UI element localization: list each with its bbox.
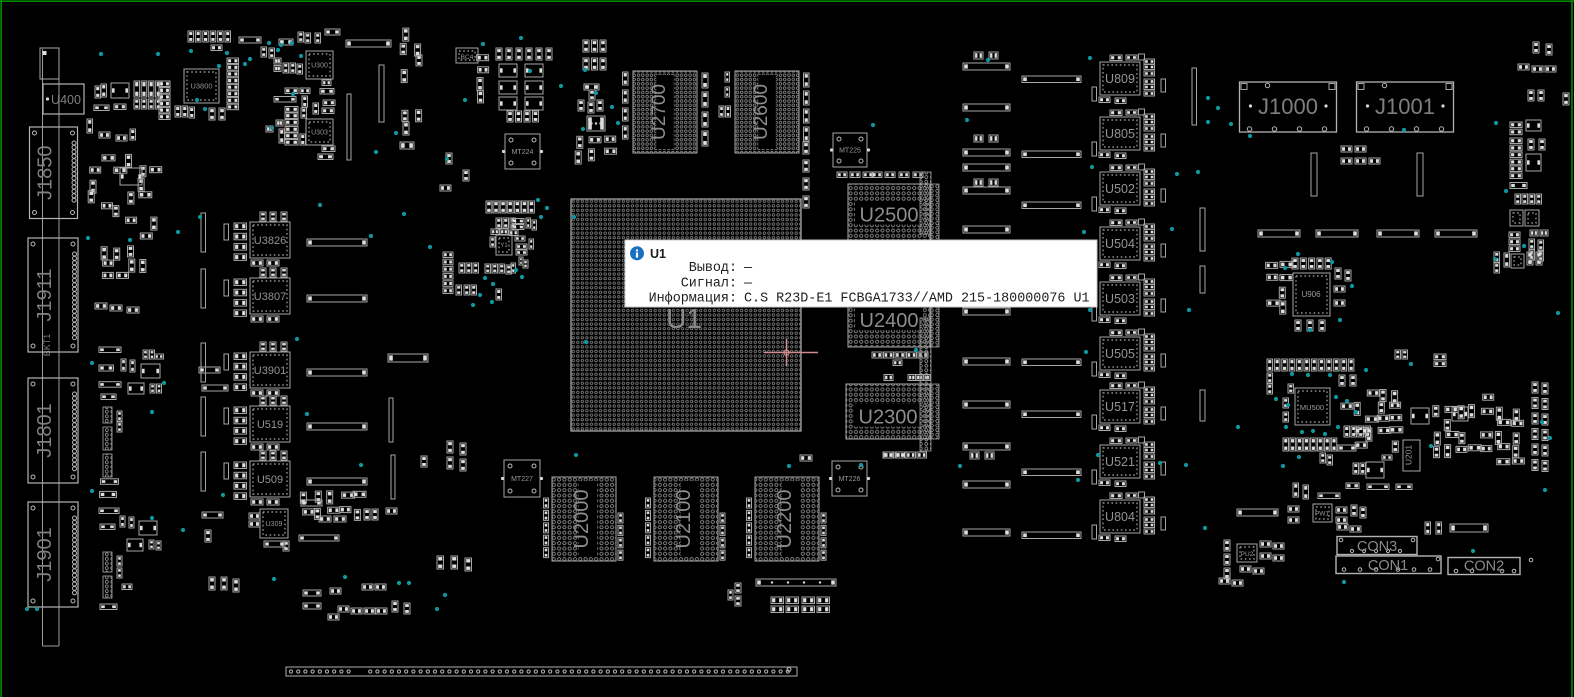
svg-text:U309: U309 [266, 521, 283, 528]
svg-text:U3826: U3826 [254, 235, 286, 247]
svg-text:U805: U805 [1105, 127, 1135, 141]
svg-text:MT225: MT225 [839, 148, 861, 155]
svg-text:Y1: Y1 [500, 243, 508, 249]
svg-text:J1000: J1000 [1258, 94, 1318, 119]
svg-text:U2000: U2000 [571, 490, 593, 549]
svg-text:U503: U503 [1105, 292, 1135, 306]
svg-text:U2500: U2500 [860, 205, 919, 227]
svg-text:U517: U517 [1105, 400, 1135, 414]
svg-text:J1911: J1911 [34, 268, 56, 321]
svg-text:MT226: MT226 [839, 476, 861, 483]
svg-text:U3807: U3807 [254, 291, 286, 303]
svg-text:MT224: MT224 [512, 149, 534, 156]
svg-text:U300: U300 [311, 63, 328, 70]
svg-text:J1001: J1001 [1375, 94, 1435, 119]
svg-text:U2100: U2100 [673, 490, 695, 549]
svg-text:U906: U906 [1301, 290, 1321, 299]
svg-text:U2400: U2400 [860, 310, 919, 332]
svg-text:BKT1: BKT1 [42, 334, 52, 357]
svg-text:U2200: U2200 [774, 490, 796, 549]
svg-text:U502: U502 [1105, 182, 1135, 196]
svg-text:MU500: MU500 [1300, 403, 1324, 412]
svg-text:U303: U303 [311, 130, 328, 137]
svg-text:U505: U505 [1105, 347, 1135, 361]
svg-text:U1: U1 [666, 303, 702, 334]
svg-text:BC4: BC4 [461, 54, 474, 61]
svg-text:U3800: U3800 [190, 82, 212, 91]
svg-text:U504: U504 [1105, 237, 1135, 251]
svg-text:U2700: U2700 [649, 84, 670, 140]
svg-text:U804: U804 [1105, 510, 1135, 524]
svg-text:—: — [743, 261, 753, 276]
svg-text:U3901: U3901 [254, 365, 286, 377]
svg-text:C.S R23D-E1 FCBGA1733//AMD 215: C.S R23D-E1 FCBGA1733//AMD 215-180000076… [744, 291, 1090, 306]
svg-text:U1: U1 [650, 247, 666, 261]
svg-text:Сигнал:: Сигнал: [681, 276, 737, 291]
svg-text:J1850: J1850 [35, 146, 57, 201]
svg-text:U400: U400 [51, 93, 81, 107]
svg-text:U2300: U2300 [859, 407, 918, 429]
svg-text:U201: U201 [1404, 445, 1414, 466]
svg-text:J1801: J1801 [34, 403, 56, 458]
svg-text:CON1: CON1 [1368, 558, 1408, 574]
svg-text:U809: U809 [1105, 72, 1135, 86]
svg-text:MT227: MT227 [511, 476, 533, 483]
svg-text:U521: U521 [1105, 455, 1135, 469]
svg-text:—: — [743, 276, 753, 291]
svg-text:PU2: PU2 [1241, 551, 1254, 558]
svg-text:U2600: U2600 [751, 84, 772, 140]
svg-text:Информация:: Информация: [649, 291, 737, 306]
svg-text:Вывод:: Вывод: [689, 261, 737, 276]
svg-text:U519: U519 [257, 419, 283, 431]
svg-text:J1901: J1901 [34, 527, 56, 582]
svg-text:U509: U509 [257, 474, 283, 486]
svg-text:CON3: CON3 [1357, 539, 1397, 555]
svg-text:PW1: PW1 [1315, 511, 1329, 518]
svg-text:CON2: CON2 [1464, 559, 1504, 575]
